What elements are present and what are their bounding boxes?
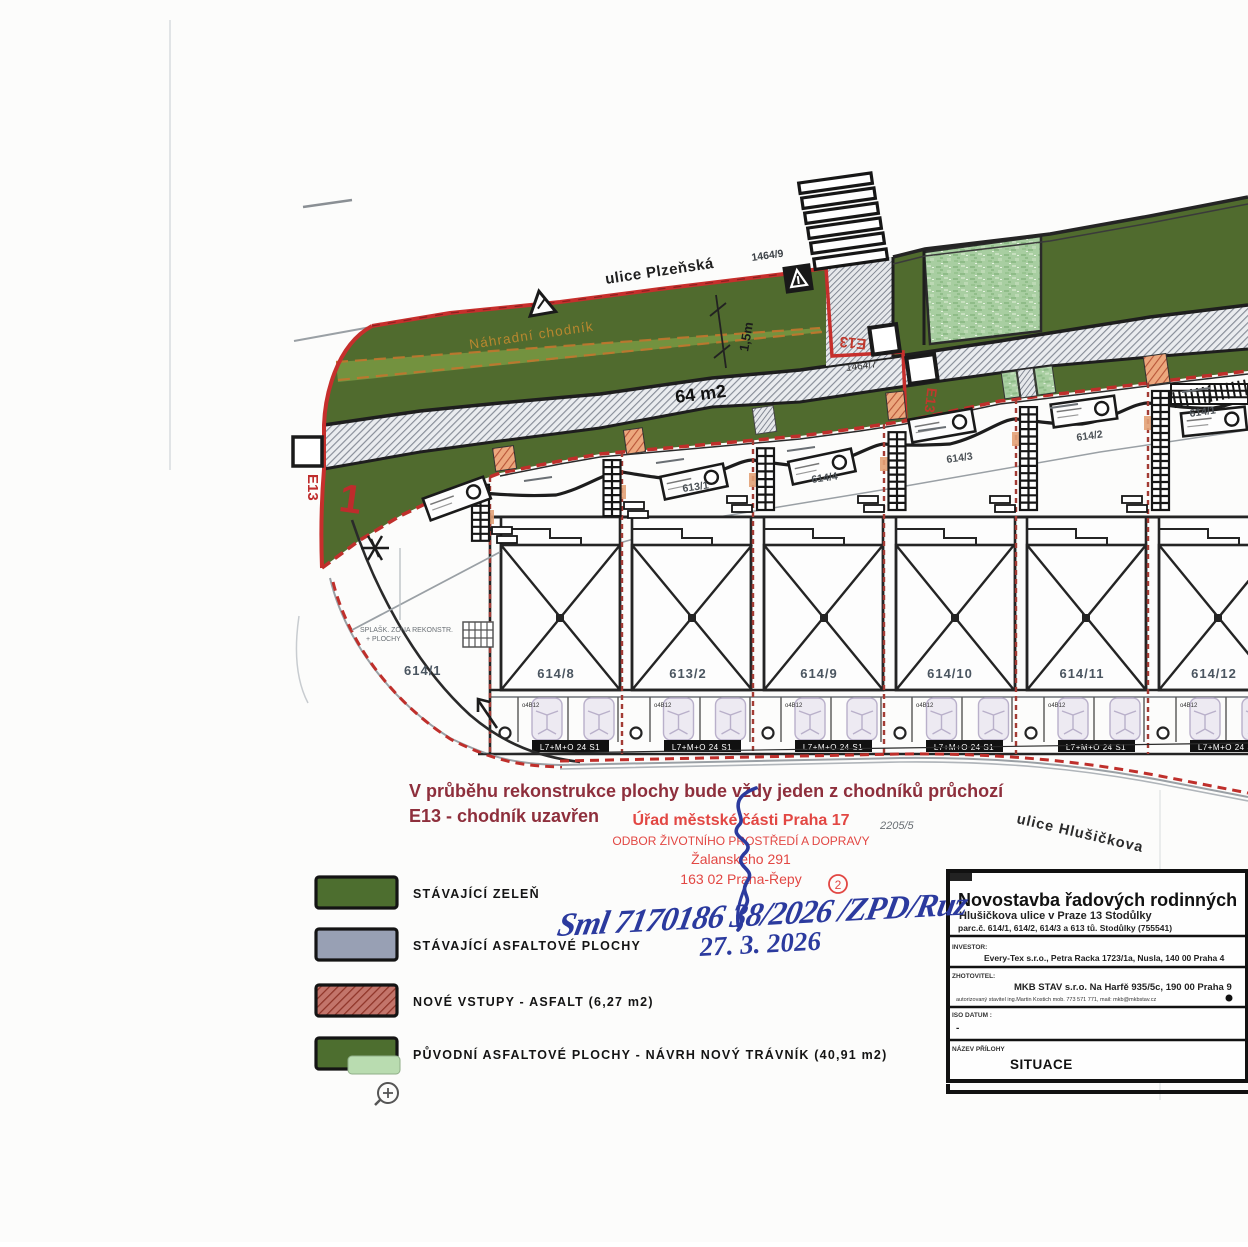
- svg-text:614/9: 614/9: [800, 666, 838, 681]
- svg-text:ZHOTOVITEL:: ZHOTOVITEL:: [952, 973, 995, 980]
- svg-text:2: 2: [835, 878, 842, 892]
- svg-text:PŮVODNÍ ASFALTOVÉ PLOCHY - NÁV: PŮVODNÍ ASFALTOVÉ PLOCHY - NÁVRH NOVÝ TR…: [413, 1046, 887, 1062]
- svg-text:L7+M+O 24 S1: L7+M+O 24 S1: [803, 743, 863, 752]
- svg-text:E13 - chodník uzavřen: E13 - chodník uzavřen: [409, 806, 599, 826]
- svg-text:parc.č. 614/1, 614/2, 614/3 a: parc.č. 614/1, 614/2, 614/3 a 613 tů. St…: [958, 923, 1172, 933]
- svg-text:163 02 Praha-Řepy: 163 02 Praha-Řepy: [680, 871, 801, 887]
- svg-text:V průběhu rekonstrukce plochy: V průběhu rekonstrukce plochy bude vždy …: [409, 781, 1004, 801]
- svg-text:614/11: 614/11: [1059, 666, 1104, 681]
- svg-text:L7+M+O 24 S1: L7+M+O 24 S1: [540, 743, 600, 752]
- svg-text:614/8: 614/8: [537, 666, 575, 681]
- svg-text:E13: E13: [839, 333, 867, 353]
- svg-text:614/10: 614/10: [927, 666, 973, 681]
- svg-text:614/12: 614/12: [1191, 666, 1237, 681]
- svg-text:613/2: 613/2: [669, 666, 707, 681]
- svg-text:o4B12: o4B12: [1180, 703, 1198, 709]
- svg-text:autorizovaný stavitel ing.Mart: autorizovaný stavitel ing.Martin Kostich…: [956, 997, 1156, 1003]
- svg-text:ISO DATUM :: ISO DATUM :: [952, 1012, 992, 1019]
- svg-text:o4B12: o4B12: [654, 703, 672, 709]
- svg-text:NOVÉ VSTUPY - ASFALT (6,27 m2): NOVÉ VSTUPY - ASFALT (6,27 m2): [413, 994, 654, 1009]
- svg-text:STÁVAJÍCÍ ZELEŇ: STÁVAJÍCÍ ZELEŇ: [413, 886, 540, 901]
- svg-text:Hlušičkova ulice v Praze 13 S: Hlušičkova ulice v Praze 13 Stodůlky: [959, 910, 1152, 922]
- svg-text:SITUACE: SITUACE: [1010, 1057, 1073, 1072]
- svg-text:INVESTOR:: INVESTOR:: [952, 944, 987, 951]
- svg-text:NÁZEV PŘÍLOHY: NÁZEV PŘÍLOHY: [952, 1044, 1005, 1053]
- svg-text:614/1: 614/1: [404, 663, 442, 678]
- svg-text:o4B12: o4B12: [522, 703, 540, 709]
- svg-text:MKB STAV s.r.o. Na Harfě 935: MKB STAV s.r.o. Na Harfě 935/5c, 190 00 …: [1014, 982, 1232, 993]
- svg-text:2205/5: 2205/5: [879, 820, 915, 832]
- svg-text:o4B12: o4B12: [1048, 703, 1066, 709]
- svg-text:o4B12: o4B12: [916, 703, 934, 709]
- svg-text:-: -: [956, 1023, 959, 1034]
- svg-text:o4B12: o4B12: [785, 703, 803, 709]
- svg-text:E13: E13: [921, 387, 940, 414]
- svg-text:Every-Tex s.r.o., Petra Racka: Every-Tex s.r.o., Petra Racka 1723/1a, N…: [984, 953, 1225, 963]
- svg-text:L7+M+O 24 S1: L7+M+O 24 S1: [1198, 743, 1248, 752]
- svg-text:+ PLOCHY: + PLOCHY: [366, 636, 401, 643]
- svg-text:SPLAŠK. ZÓNA REKONSTR.: SPLAŠK. ZÓNA REKONSTR.: [360, 625, 453, 634]
- svg-text:Novostavba řadových rodinných: Novostavba řadových rodinných: [958, 890, 1237, 910]
- svg-text:E13: E13: [304, 474, 321, 501]
